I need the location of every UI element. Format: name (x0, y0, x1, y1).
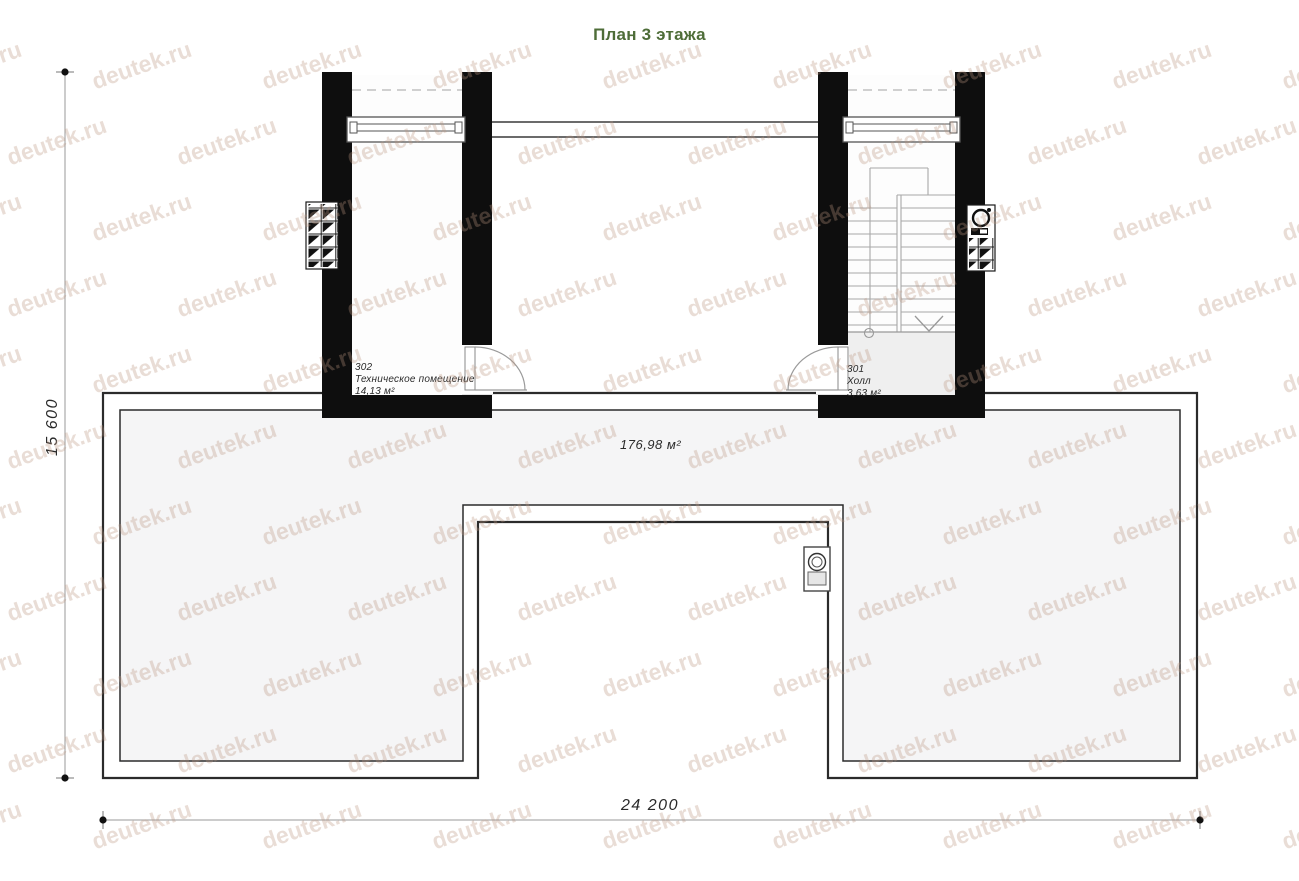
tower-stair-hall (786, 72, 995, 418)
wall (818, 72, 848, 345)
dimension-height-label: 15 600 (44, 387, 62, 467)
window-symbol (347, 117, 465, 142)
dimension-width-label: 24 200 (550, 797, 750, 815)
page-title: План 3 этажа (0, 25, 1299, 45)
room-area: 3,63 м² (847, 388, 881, 400)
floor-plan-page: План 3 этажа 302 Техническое помещение 1… (0, 0, 1299, 881)
chimney-symbol (804, 547, 830, 591)
vent-grille-icon (306, 202, 338, 269)
room-name: Техническое помещение (355, 374, 475, 386)
room-number: 302 (355, 362, 475, 374)
door-symbol (786, 345, 849, 394)
wall (818, 395, 985, 418)
room-301-label: 301 Холл 3,63 м² (847, 364, 881, 401)
room-name: Холл (847, 376, 881, 388)
flue-vent-icon (967, 205, 995, 271)
parapet-lines (492, 122, 818, 137)
room-302-label: 302 Техническое помещение 14,13 м² (355, 362, 475, 399)
wall (462, 72, 492, 345)
roof-area-label: 176,98 м² (620, 437, 681, 452)
window-symbol (843, 117, 960, 142)
room-area: 14,13 м² (355, 386, 475, 398)
room-number: 301 (847, 364, 881, 376)
